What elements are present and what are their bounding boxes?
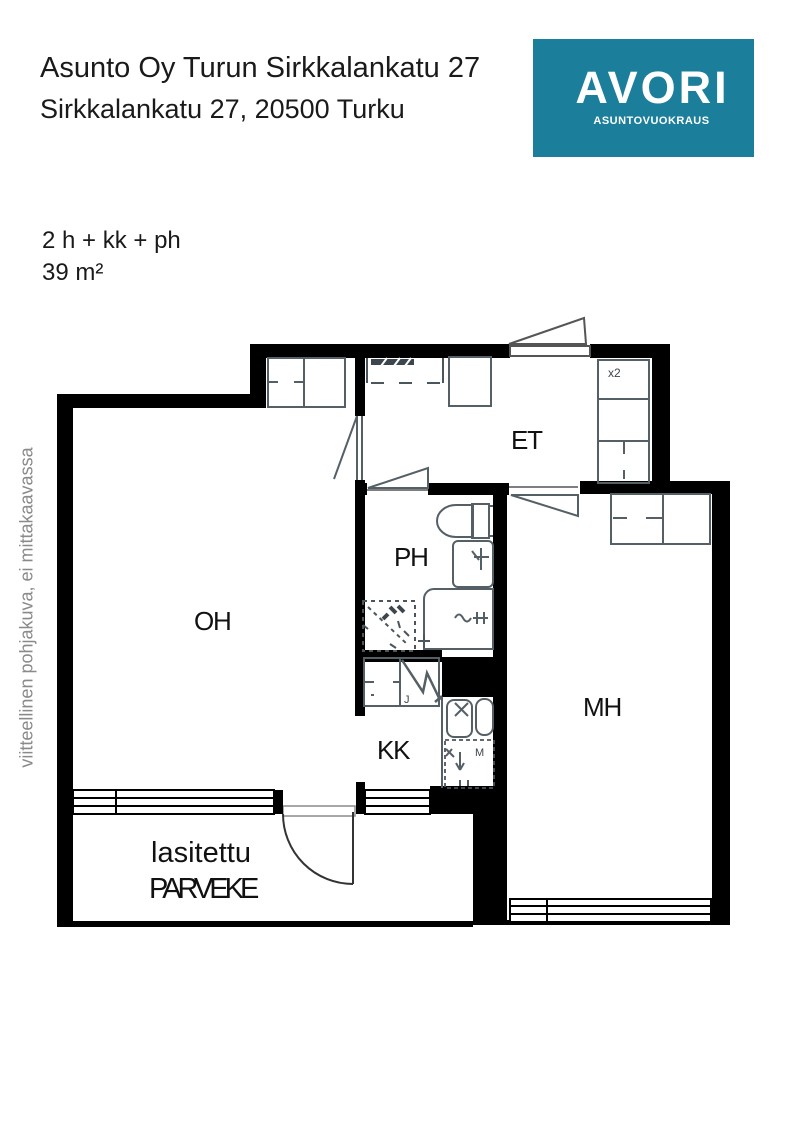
svg-text:PARVEKE: PARVEKE [149,873,259,905]
svg-text:OH: OH [194,606,231,636]
svg-text:lasitettu: lasitettu [151,837,251,869]
svg-text:J: J [404,694,410,706]
svg-text:KK: KK [377,735,411,765]
svg-text:MH: MH [583,692,621,722]
svg-text:x2: x2 [608,366,621,380]
svg-text:PH: PH [394,542,428,572]
svg-text:ET: ET [511,425,543,455]
svg-text:M: M [475,747,484,759]
